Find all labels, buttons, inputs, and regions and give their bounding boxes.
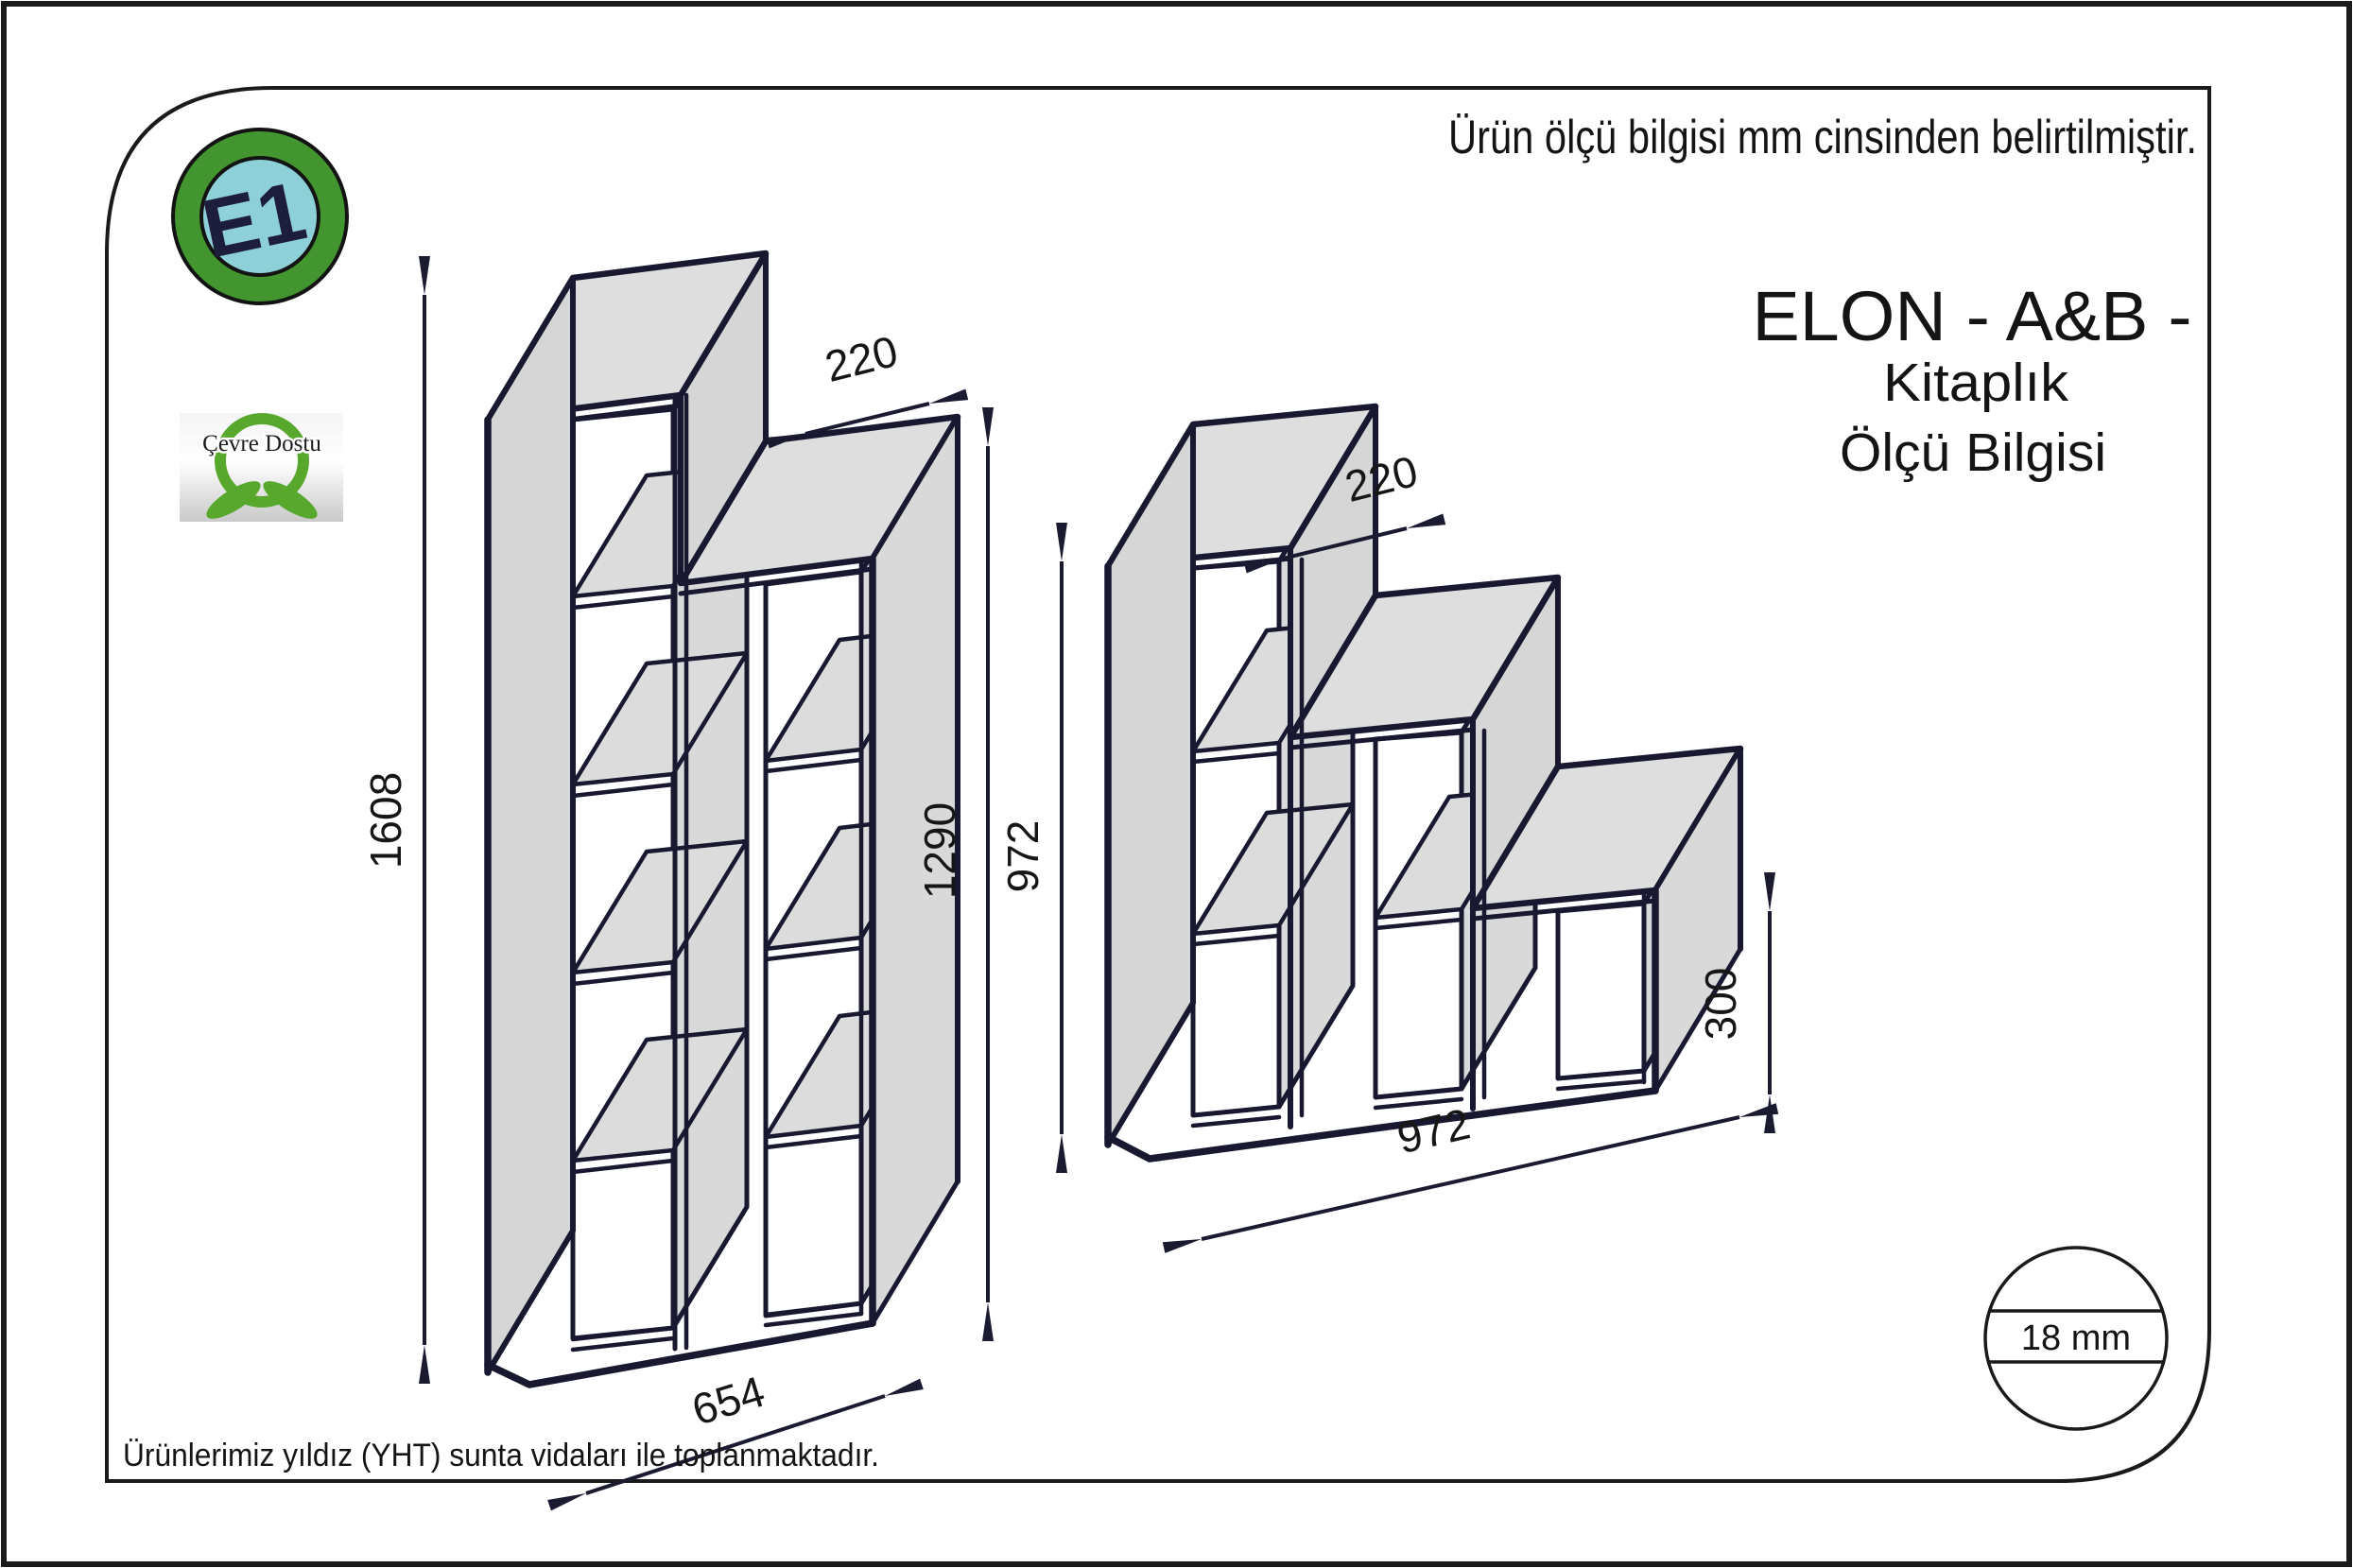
- shelf-a-height-right-dim: 1290: [915, 802, 964, 899]
- thickness-detail: 18 mm: [1985, 1248, 2167, 1429]
- eco-badge: Çevre Dostu: [180, 413, 343, 526]
- assembly-note: Ürünlerimiz yıldız (YHT) sunta vidaları …: [123, 1438, 879, 1473]
- shelf-a-height-left-dim: 1608: [361, 772, 410, 869]
- product-title: ELON - A&B -: [1753, 277, 2192, 355]
- product-type: Kitaplık: [1883, 353, 2069, 413]
- drawing-sheet: E1 Çevre Dostu Ürün ölçü bilgisi mm cins…: [0, 0, 2353, 1568]
- e1-badge: E1: [173, 129, 347, 303]
- shelf-b-col3-interior: [1558, 904, 1644, 1078]
- unit-note: Ürün ölçü bilgisi mm cinsinden belirtilm…: [1448, 111, 2197, 164]
- shelf-b-height-dim: 972: [998, 820, 1047, 893]
- technical-drawing-canvas: E1 Çevre Dostu Ürün ölçü bilgisi mm cins…: [0, 0, 2353, 1568]
- shelf-b-step-height-dim: 300: [1696, 968, 1745, 1041]
- eco-label: Çevre Dostu: [202, 431, 321, 457]
- thickness-label: 18 mm: [2021, 1318, 2131, 1358]
- shelf-a-left-panel: [488, 278, 573, 1372]
- drawing-type: Ölçü Bilgisi: [1840, 422, 2106, 483]
